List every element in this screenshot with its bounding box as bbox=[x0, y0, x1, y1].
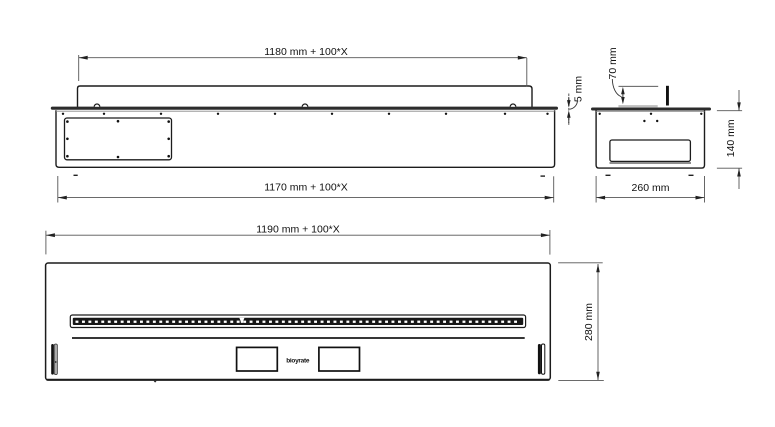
svg-text:260 mm: 260 mm bbox=[632, 182, 670, 194]
svg-text:280 mm: 280 mm bbox=[583, 303, 595, 341]
svg-text:1180 mm + 100*X: 1180 mm + 100*X bbox=[264, 46, 348, 58]
svg-text:70 mm: 70 mm bbox=[607, 47, 619, 79]
svg-text:1190 mm + 100*X: 1190 mm + 100*X bbox=[256, 223, 340, 235]
svg-text:1170 mm + 100*X: 1170 mm + 100*X bbox=[264, 181, 348, 193]
svg-text:5 mm: 5 mm bbox=[573, 76, 585, 103]
svg-text:bioyrate: bioyrate bbox=[286, 358, 310, 365]
svg-text:140 mm: 140 mm bbox=[725, 119, 737, 157]
